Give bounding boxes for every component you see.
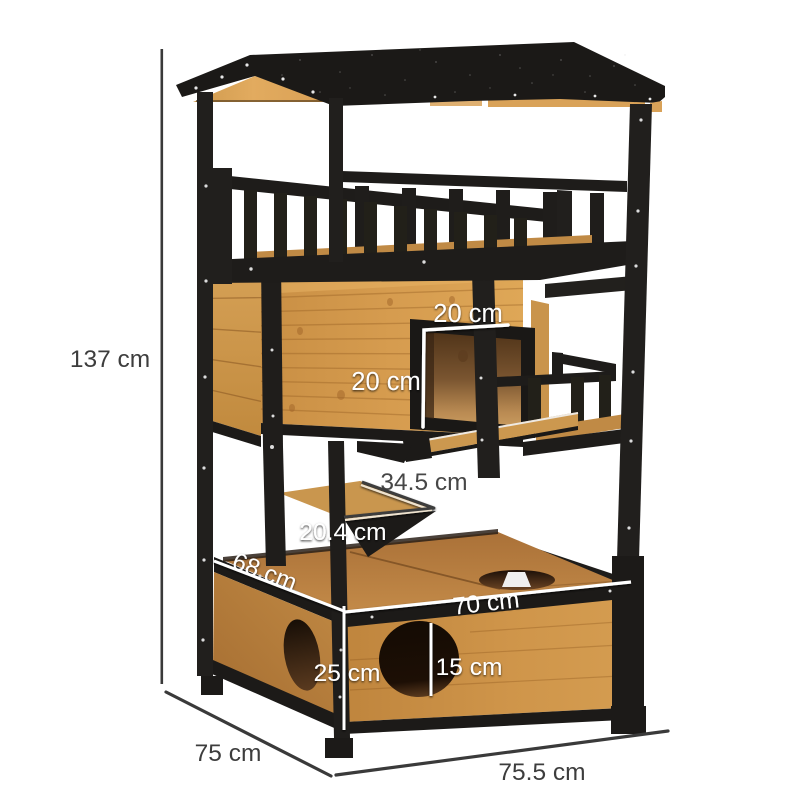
- svg-text:20.4 cm: 20.4 cm: [299, 519, 386, 546]
- svg-text:75.5 cm: 75.5 cm: [498, 759, 585, 786]
- svg-text:25 cm: 25 cm: [314, 660, 381, 687]
- svg-text:15 cm: 15 cm: [436, 654, 503, 681]
- svg-text:20 cm: 20 cm: [351, 368, 420, 396]
- svg-text:75 cm: 75 cm: [195, 740, 262, 767]
- svg-text:137 cm: 137 cm: [70, 346, 150, 373]
- svg-text:20 cm: 20 cm: [433, 300, 502, 328]
